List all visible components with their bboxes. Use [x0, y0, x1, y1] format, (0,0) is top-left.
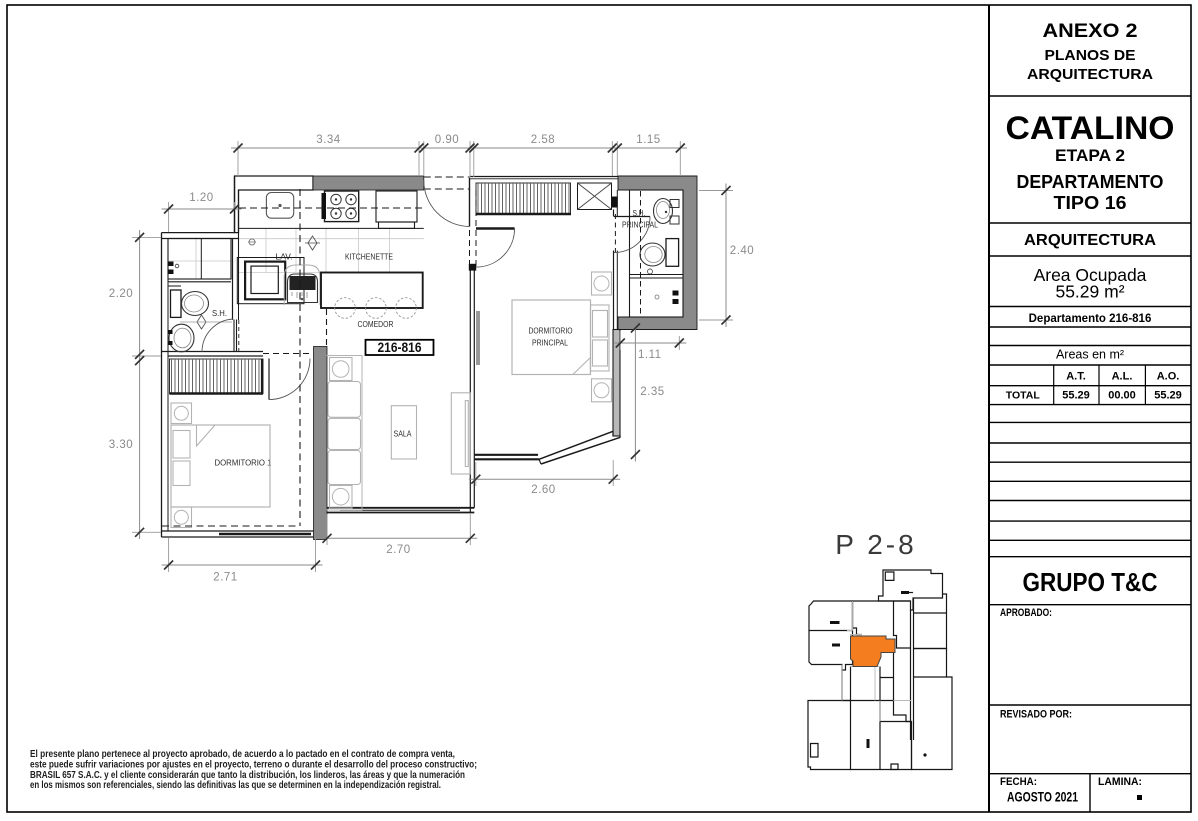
- svg-text:TOTAL: TOTAL: [1006, 390, 1041, 402]
- svg-text:PRINCIPAL: PRINCIPAL: [532, 338, 568, 348]
- svg-text:ARQUITECTURA: ARQUITECTURA: [1027, 66, 1153, 83]
- svg-text:ANEXO 2: ANEXO 2: [1043, 21, 1138, 42]
- svg-text:REVISADO POR:: REVISADO POR:: [1000, 709, 1072, 721]
- svg-text:CATALINO: CATALINO: [1006, 110, 1175, 146]
- svg-text:LAMINA:: LAMINA:: [1098, 776, 1142, 788]
- svg-text:2.20: 2.20: [109, 288, 133, 300]
- svg-text:AGOSTO 2021: AGOSTO 2021: [1007, 790, 1078, 805]
- svg-text:S.H.: S.H.: [633, 209, 646, 218]
- svg-text:P 2-8: P 2-8: [835, 529, 916, 560]
- svg-text:ETAPA 2: ETAPA 2: [1055, 146, 1125, 165]
- svg-text:55.29 m²: 55.29 m²: [1055, 282, 1124, 302]
- svg-text:2.70: 2.70: [386, 544, 410, 556]
- svg-text:3.34: 3.34: [316, 134, 340, 146]
- svg-text:00.00: 00.00: [1108, 390, 1136, 402]
- svg-text:en los mismos son referenciale: en los mismos son referenciales, siendo …: [30, 780, 441, 791]
- svg-text:S.H.: S.H.: [212, 308, 227, 318]
- svg-text:El presente plano pertenece al: El presente plano pertenece al proyecto …: [30, 749, 455, 760]
- svg-text:DORMITORIO 1: DORMITORIO 1: [215, 458, 272, 468]
- svg-text:este puede sufrir variaciones: este puede sufrir variaciones por ajuste…: [30, 759, 477, 770]
- svg-text:2.60: 2.60: [531, 484, 555, 496]
- svg-text:ARQUITECTURA: ARQUITECTURA: [1024, 232, 1156, 249]
- svg-text:TIPO 16: TIPO 16: [1054, 193, 1127, 213]
- svg-text:2.58: 2.58: [531, 134, 555, 146]
- svg-text:216-816: 216-816: [378, 340, 422, 355]
- svg-text:2.71: 2.71: [213, 572, 237, 584]
- svg-text:A.O.: A.O.: [1157, 371, 1180, 383]
- svg-text:A.L.: A.L.: [1112, 371, 1133, 383]
- svg-text:GRUPO T&C: GRUPO T&C: [1023, 567, 1158, 597]
- svg-text:1.15: 1.15: [636, 134, 660, 146]
- svg-text:1.11: 1.11: [638, 349, 662, 361]
- svg-text:APROBADO:: APROBADO:: [1000, 607, 1052, 619]
- svg-text:FECHA:: FECHA:: [1000, 776, 1037, 788]
- svg-text:A.T.: A.T.: [1066, 371, 1086, 383]
- svg-text:LAV.: LAV.: [276, 252, 293, 262]
- svg-text:55.29: 55.29: [1154, 390, 1182, 402]
- svg-text:3.30: 3.30: [109, 439, 133, 451]
- svg-text:KITCHENETTE: KITCHENETTE: [345, 252, 393, 262]
- svg-text:DORMITORIO: DORMITORIO: [529, 326, 573, 336]
- svg-text:Departamento 216-816: Departamento 216-816: [1029, 313, 1152, 325]
- svg-text:COMEDOR: COMEDOR: [358, 319, 394, 329]
- svg-text:0.90: 0.90: [435, 134, 459, 146]
- svg-text:SALA: SALA: [394, 429, 412, 439]
- svg-text:Areas en m²: Areas en m²: [1056, 348, 1124, 362]
- svg-text:PLANOS DE: PLANOS DE: [1045, 47, 1136, 64]
- svg-text:2.40: 2.40: [730, 245, 754, 257]
- svg-text:1.20: 1.20: [189, 192, 213, 204]
- svg-text:55.29: 55.29: [1062, 390, 1090, 402]
- svg-text:BRASIL 657 S.A.C. y el cliente: BRASIL 657 S.A.C. y el cliente considera…: [30, 770, 465, 781]
- svg-text:DEPARTAMENTO: DEPARTAMENTO: [1017, 172, 1164, 192]
- svg-text:2.35: 2.35: [640, 386, 664, 398]
